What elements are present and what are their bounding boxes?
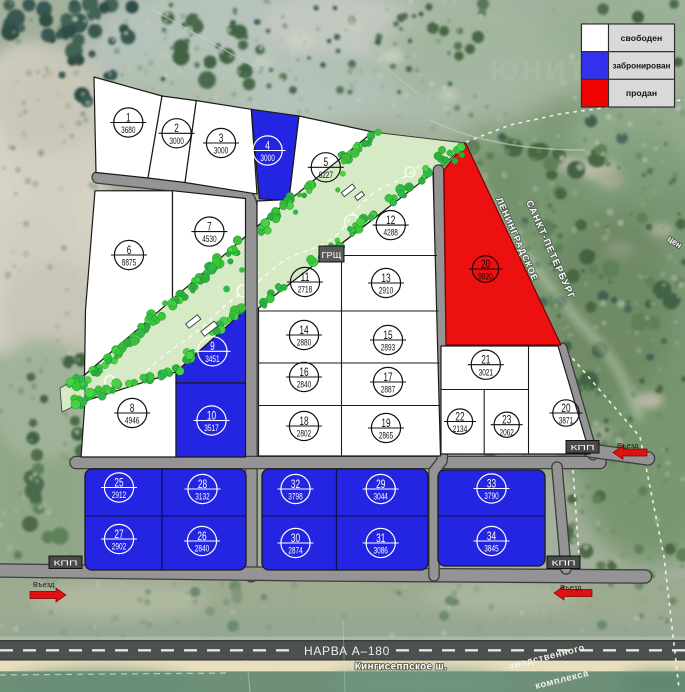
svg-text:3021: 3021 [479,367,493,377]
svg-text:26: 26 [197,529,206,543]
svg-text:15: 15 [383,328,392,342]
svg-text:4946: 4946 [125,416,139,426]
svg-text:25: 25 [114,475,123,489]
svg-text:4: 4 [265,138,270,152]
svg-text:Въезд: Въезд [560,583,582,592]
svg-text:3000: 3000 [260,153,274,163]
svg-text:3132: 3132 [195,492,209,502]
svg-text:16: 16 [299,365,308,379]
svg-text:8: 8 [130,401,135,415]
svg-text:7: 7 [207,219,212,233]
svg-text:2840: 2840 [195,544,209,554]
svg-text:9: 9 [210,339,215,353]
svg-text:33: 33 [487,476,496,490]
svg-text:31: 31 [376,531,385,545]
svg-text:12: 12 [386,213,395,227]
svg-text:32: 32 [291,477,300,491]
svg-text:3798: 3798 [288,492,302,502]
svg-text:34: 34 [487,529,496,543]
svg-text:30: 30 [291,531,300,545]
svg-text:2912: 2912 [112,490,126,500]
svg-text:5: 5 [324,155,329,169]
svg-text:продан: продан [626,88,657,98]
svg-text:20: 20 [481,257,490,271]
svg-text:8875: 8875 [122,258,136,268]
svg-text:3871: 3871 [559,416,573,426]
svg-text:2887: 2887 [381,385,395,395]
svg-text:2865: 2865 [379,431,393,441]
svg-text:2718: 2718 [298,285,312,295]
svg-text:6227: 6227 [319,170,333,180]
svg-text:Въезд: Въезд [617,441,639,450]
svg-text:2910: 2910 [379,286,393,296]
svg-text:3044: 3044 [374,492,388,502]
svg-text:6: 6 [127,243,132,257]
svg-text:29: 29 [376,477,385,491]
svg-text:28: 28 [198,477,207,491]
svg-text:забронирован: забронирован [613,61,671,71]
svg-text:3517: 3517 [204,423,218,433]
svg-text:11: 11 [300,270,309,284]
svg-text:ГРЩ: ГРЩ [322,251,343,260]
svg-text:КПП: КПП [54,559,78,568]
svg-text:3451: 3451 [205,354,219,364]
svg-text:КПП: КПП [571,443,595,452]
svg-text:2: 2 [174,121,179,135]
svg-text:3000: 3000 [169,136,183,146]
svg-text:23: 23 [502,413,511,427]
svg-text:3: 3 [219,131,224,145]
svg-text:КПП: КПП [552,559,576,568]
svg-text:19: 19 [381,416,390,430]
svg-text:3790: 3790 [484,491,498,501]
svg-text:2134: 2134 [453,424,467,434]
svg-text:27: 27 [114,527,123,541]
svg-text:свободен: свободен [621,33,663,43]
svg-text:4288: 4288 [384,228,398,238]
svg-text:3000: 3000 [214,146,228,156]
svg-text:2062: 2062 [500,427,514,437]
svg-text:2874: 2874 [288,546,302,556]
svg-text:2902: 2902 [112,542,126,552]
svg-text:20: 20 [561,401,570,415]
svg-text:2893: 2893 [381,343,395,353]
svg-text:Въезд: Въезд [33,580,55,589]
svg-text:14: 14 [299,323,308,337]
svg-text:10: 10 [207,408,216,422]
svg-text:3680: 3680 [121,125,135,135]
svg-text:4530: 4530 [202,234,216,244]
svg-text:17: 17 [383,370,392,384]
svg-text:18: 18 [299,414,308,428]
svg-text:1: 1 [126,110,131,124]
svg-text:2880: 2880 [297,338,311,348]
svg-text:22: 22 [455,409,464,423]
svg-text:9920: 9920 [478,272,492,282]
svg-text:21: 21 [481,353,490,367]
svg-text:3086: 3086 [374,546,388,556]
svg-text:3845: 3845 [484,544,498,554]
svg-text:2840: 2840 [297,380,311,390]
svg-text:2802: 2802 [297,429,311,439]
svg-text:Кингисеппское ш.: Кингисеппское ш. [355,662,447,673]
svg-text:13: 13 [381,271,390,285]
